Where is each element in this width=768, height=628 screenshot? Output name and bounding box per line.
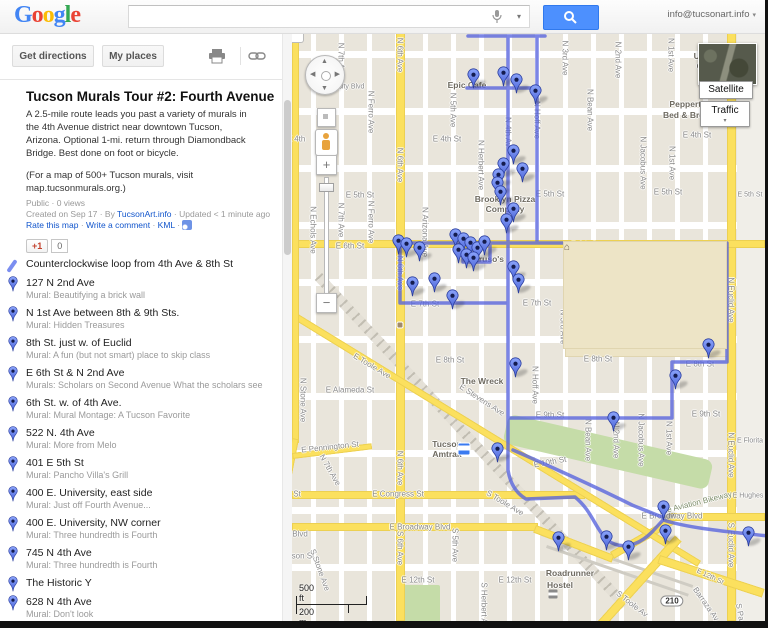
- magnifier-icon: [544, 6, 598, 29]
- road-6th-ave: [396, 33, 405, 621]
- pin-icon: [8, 366, 18, 387]
- search-options-caret-icon[interactable]: ▾: [517, 12, 521, 21]
- pan-down-icon[interactable]: ▼: [321, 85, 328, 92]
- item-title: 401 E 5th St: [26, 457, 283, 469]
- pin-icon: [8, 486, 18, 507]
- map-marker[interactable]: [552, 531, 565, 552]
- list-item[interactable]: Counterclockwise loop from 4th Ave & 8th…: [0, 256, 283, 272]
- map-marker[interactable]: [400, 237, 413, 258]
- reset-view-button[interactable]: [317, 108, 336, 127]
- item-subtitle: Mural: Three hundredth is Fourth: [26, 530, 283, 540]
- google-logo[interactable]: Google: [14, 2, 80, 29]
- map-marker[interactable]: [413, 241, 426, 262]
- item-subtitle: Mural: A fun (but not smart) place to sk…: [26, 350, 283, 360]
- link-icon[interactable]: [248, 48, 266, 64]
- pan-up-icon[interactable]: ▲: [321, 58, 328, 65]
- item-subtitle: Mural: More from Melo: [26, 440, 283, 450]
- list-item[interactable]: The Historic Y: [0, 575, 283, 591]
- account-caret-icon: ▾: [752, 12, 756, 19]
- item-title: 127 N 2nd Ave: [26, 277, 283, 289]
- park-green: [404, 585, 440, 621]
- pegman-control[interactable]: [315, 129, 338, 156]
- pin-icon: [8, 516, 18, 537]
- pan-center-icon[interactable]: [321, 71, 331, 81]
- map-marker[interactable]: [657, 500, 670, 521]
- traffic-caret-icon: ▾: [701, 118, 749, 124]
- item-subtitle: Mural: Pancho Villa's Grill: [26, 470, 283, 480]
- map-title: Tucson Murals Tour #2: Fourth Avenue: [26, 89, 283, 104]
- map-marker[interactable]: [494, 185, 507, 206]
- map-marker[interactable]: [742, 526, 755, 547]
- sidebar: Get directions My places Tucson Murals T…: [0, 33, 292, 621]
- zoom-slider-thumb[interactable]: [319, 183, 334, 192]
- satellite-button[interactable]: Satellite: [699, 81, 753, 99]
- map-marker[interactable]: [659, 524, 672, 545]
- scale-feet-label: 500 ft: [299, 583, 314, 603]
- map-marker[interactable]: [512, 273, 525, 294]
- map-marker[interactable]: [529, 84, 542, 105]
- kml-link[interactable]: KML: [158, 220, 175, 230]
- toolbar-divider: [240, 47, 241, 65]
- item-title: N 1st Ave between 8th & 9th Sts.: [26, 307, 283, 319]
- map-marker[interactable]: [406, 276, 419, 297]
- map-marker[interactable]: [500, 213, 513, 234]
- search-box: ▾: [128, 5, 530, 28]
- zoom-out-button[interactable]: −: [316, 293, 337, 313]
- route-line-icon: [6, 259, 17, 273]
- map-note: (For a map of 500+ Tucson murals, visit …: [26, 169, 283, 195]
- pin-icon: [8, 396, 18, 417]
- account-menu[interactable]: info@tucsonart.info▾: [667, 9, 756, 20]
- item-title: 400 E. University, east side: [26, 487, 283, 499]
- print-icon[interactable]: [208, 48, 226, 64]
- google-header: Google ▾ info@tucsonart.info▾: [0, 0, 768, 34]
- map-marker[interactable]: [467, 251, 480, 272]
- scale-meters-label: 200 m: [299, 607, 314, 621]
- pegman-icon: [323, 133, 329, 139]
- sidebar-toolbar: Get directions My places: [0, 33, 283, 80]
- item-subtitle: Mural: Don't look: [26, 609, 283, 619]
- map-description: A 2.5-mile route leads you past a variet…: [26, 108, 283, 160]
- road-broadway-right: [668, 513, 765, 521]
- pin-icon: [8, 276, 18, 297]
- item-subtitle: Mural: Beautifying a brick wall: [26, 290, 283, 300]
- zoom-in-button[interactable]: +: [316, 155, 337, 175]
- map-marker[interactable]: [491, 442, 504, 463]
- pin-icon: [8, 426, 18, 447]
- list-item[interactable]: 400 E. University, east sideMural: Just …: [0, 485, 283, 512]
- map-marker[interactable]: [622, 540, 635, 561]
- pin-icon: [8, 456, 18, 477]
- earth-icon[interactable]: [182, 220, 192, 230]
- road-broadway-left: [292, 523, 538, 531]
- map-marker[interactable]: [702, 338, 715, 359]
- list-item[interactable]: 8th St. just w. of EuclidMural: A fun (b…: [0, 335, 283, 362]
- rate-map-link[interactable]: Rate this map: [26, 220, 78, 230]
- item-title: 745 N 4th Ave: [26, 547, 283, 559]
- map-marker[interactable]: [446, 289, 459, 310]
- map-marker[interactable]: [428, 272, 441, 293]
- item-title: E 6th St & N 2nd Ave: [26, 367, 283, 379]
- my-places-button[interactable]: My places: [102, 45, 164, 67]
- write-comment-link[interactable]: Write a comment: [86, 220, 150, 230]
- map-marker[interactable]: [497, 66, 510, 87]
- road-congress-st: [292, 491, 585, 499]
- list-item[interactable]: 400 E. University, NW cornerMural: Three…: [0, 515, 283, 542]
- created-updated: Created on Sep 17 · By TucsonArt.info · …: [26, 209, 283, 219]
- map-marker[interactable]: [467, 68, 480, 89]
- zoom-slider-track[interactable]: [324, 177, 329, 294]
- item-title: The Historic Y: [26, 577, 283, 589]
- item-title: 400 E. University, NW corner: [26, 517, 283, 529]
- plus-one-button[interactable]: +1: [26, 239, 48, 253]
- list-item[interactable]: 628 N 4th AveMural: Don't look: [0, 594, 283, 621]
- map-marker[interactable]: [669, 369, 682, 390]
- item-title: 522 N. 4th Ave: [26, 427, 283, 439]
- item-subtitle: Mural: Hidden Treasures: [26, 320, 283, 330]
- item-title: 8th St. just w. of Euclid: [26, 337, 283, 349]
- google-my-maps-page: Google ▾ info@tucsonart.info▾ Get direct…: [0, 0, 768, 628]
- pin-icon: [8, 306, 18, 327]
- pin-icon: [8, 595, 18, 616]
- map-canvas[interactable]: E University BlvdE 4thE 4th StE 4th StE …: [292, 33, 765, 621]
- sidebar-scrollbar[interactable]: [282, 33, 292, 621]
- map-marker[interactable]: [510, 73, 523, 94]
- window-edge-bottom: [0, 621, 768, 628]
- list-item[interactable]: 6th St. w. of 4th Ave.Mural: Mural Monta…: [0, 395, 283, 422]
- item-subtitle: Murals: Scholars on Second Avenue What t…: [26, 380, 283, 390]
- list-item[interactable]: 745 N 4th AveMural: Three hundredth is F…: [0, 545, 283, 572]
- satellite-preview-thumbnail[interactable]: [698, 43, 757, 85]
- road-stone-ave: [292, 33, 299, 443]
- pan-control[interactable]: ▲ ▼ ◀ ▶: [305, 55, 345, 95]
- traffic-button[interactable]: Traffic▾: [700, 101, 750, 127]
- list-item[interactable]: 522 N. 4th AveMural: More from Melo: [0, 425, 283, 452]
- item-subtitle: Mural: Three hundredth is Fourth: [26, 560, 283, 570]
- search-input[interactable]: [133, 7, 487, 26]
- plusone-row: +10: [26, 236, 283, 251]
- sidebar-content: Tucson Murals Tour #2: Fourth Avenue A 2…: [0, 80, 283, 621]
- action-links: Rate this map · Write a comment · KML ·: [26, 220, 283, 230]
- search-button[interactable]: [543, 5, 599, 30]
- item-subtitle: Mural: Mural Montage: A Tucson Favorite: [26, 410, 283, 420]
- map-marker[interactable]: [509, 357, 522, 378]
- road-6th-st: [292, 240, 765, 248]
- pin-icon: [8, 546, 18, 567]
- item-title: 6th St. w. of 4th Ave.: [26, 397, 283, 409]
- author-link[interactable]: TucsonArt.info: [117, 209, 172, 219]
- item-title: 628 N 4th Ave: [26, 596, 283, 608]
- pan-left-icon[interactable]: ◀: [310, 70, 315, 78]
- placemark-list: Counterclockwise loop from 4th Ave & 8th…: [0, 256, 283, 621]
- scrollbar-thumb[interactable]: [284, 100, 291, 255]
- map-marker[interactable]: [600, 530, 613, 551]
- map-marker[interactable]: [516, 162, 529, 183]
- get-directions-button[interactable]: Get directions: [12, 45, 94, 67]
- list-item[interactable]: 401 E 5th StMural: Pancho Villa's Grill: [0, 455, 283, 482]
- item-title: Counterclockwise loop from 4th Ave & 8th…: [26, 258, 283, 270]
- plus-one-count: 0: [51, 239, 68, 253]
- pin-icon: [8, 336, 18, 357]
- list-item[interactable]: 127 N 2nd AveMural: Beautifying a brick …: [0, 275, 283, 302]
- microphone-icon[interactable]: [491, 9, 503, 24]
- list-item[interactable]: E 6th St & N 2nd AveMurals: Scholars on …: [0, 365, 283, 392]
- list-item[interactable]: N 1st Ave between 8th & 9th Sts.Mural: H…: [0, 305, 283, 332]
- pan-right-icon[interactable]: ▶: [335, 70, 340, 78]
- visibility-views: Public · 0 views: [26, 198, 283, 208]
- map-marker[interactable]: [607, 411, 620, 432]
- item-subtitle: Mural: Just off Fourth Avenue...: [26, 500, 283, 510]
